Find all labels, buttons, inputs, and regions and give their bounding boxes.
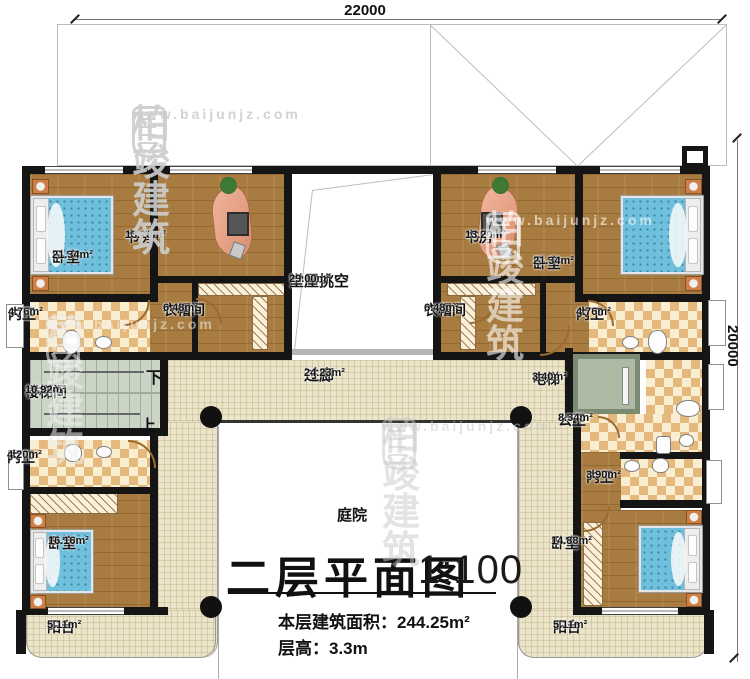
- sink: [622, 336, 639, 349]
- wall: [433, 174, 441, 356]
- nightstand: [686, 510, 702, 524]
- wardrobe-hatch: [447, 283, 536, 296]
- corridor-courtyard-edge-light: [212, 423, 530, 426]
- floor-height-value: 3.3m: [329, 639, 368, 658]
- corridor-floor: [168, 360, 565, 422]
- stair-arrow: [44, 371, 144, 373]
- wall: [284, 174, 292, 356]
- toilet: [676, 400, 700, 417]
- dimension-line-top: [75, 19, 722, 20]
- nightstand: [32, 179, 49, 194]
- void-railing: [292, 349, 433, 355]
- window: [48, 607, 124, 615]
- bed: [31, 530, 93, 593]
- sink: [624, 460, 640, 472]
- window: [478, 166, 556, 174]
- sink: [95, 336, 112, 349]
- wardrobe-hatch: [252, 296, 268, 350]
- bed-sheet-fold: [47, 203, 65, 267]
- washstand: [656, 436, 671, 454]
- bed: [31, 196, 113, 274]
- dimension-height-label: 20000: [724, 325, 741, 367]
- bay-window: [8, 450, 24, 490]
- potted-plant: [492, 177, 509, 194]
- drawing-scale: 1:100: [418, 548, 523, 593]
- bed: [639, 526, 702, 592]
- roof-outline: [57, 24, 727, 166]
- balcony-wall-stub: [704, 610, 714, 654]
- wall: [581, 294, 710, 302]
- bay-window: [708, 364, 724, 410]
- wall: [22, 487, 158, 494]
- bed-pillow: [36, 238, 46, 264]
- bed-pillow: [35, 564, 44, 584]
- balcony-floor-left: [26, 610, 216, 658]
- balcony-wall-stub: [16, 610, 26, 654]
- window: [600, 166, 680, 174]
- wall: [22, 352, 292, 360]
- balcony-floor-right: [518, 610, 708, 658]
- window: [45, 166, 123, 174]
- stair-up-label: 上: [140, 412, 156, 436]
- stair-arrow: [44, 413, 140, 415]
- bed: [621, 196, 703, 274]
- nightstand: [32, 276, 49, 291]
- wall: [441, 276, 581, 283]
- floor-height-label: 层高：: [278, 639, 329, 658]
- sink: [679, 434, 694, 447]
- elevator-door-slot: [622, 367, 629, 405]
- column: [510, 406, 532, 428]
- bay-window: [708, 300, 726, 346]
- hall-floor-right: [581, 452, 621, 510]
- column: [510, 596, 532, 618]
- wall: [22, 166, 30, 615]
- elevator-cab: [573, 354, 640, 414]
- bed-pillow: [688, 206, 698, 232]
- bed-pillow: [688, 535, 697, 556]
- nightstand: [685, 276, 702, 291]
- toilet: [64, 444, 82, 462]
- toilet: [648, 330, 667, 354]
- dimension-width-label: 22000: [285, 2, 445, 19]
- wall: [158, 276, 288, 283]
- bay-window: [706, 460, 722, 504]
- floor-area-line: 本层建筑面积：244.25m²: [278, 608, 470, 633]
- double-height-void: [292, 174, 433, 349]
- roof-divider-line: [430, 24, 431, 166]
- floor-area-value: 244.25m²: [397, 613, 470, 632]
- bed-sheet-fold: [45, 536, 60, 587]
- nightstand: [685, 179, 702, 194]
- chimney-detail: [682, 146, 708, 168]
- wall: [573, 418, 581, 615]
- window: [602, 607, 678, 615]
- toilet: [62, 330, 81, 354]
- stair-landing-line: [30, 392, 160, 394]
- bed-sheet-fold: [671, 532, 686, 586]
- stair-down-label: 下: [146, 364, 162, 388]
- wall: [565, 348, 573, 418]
- wall: [150, 174, 158, 302]
- title-underline: [228, 592, 496, 594]
- nightstand: [30, 595, 46, 609]
- wardrobe-hatch: [198, 283, 286, 296]
- bay-window: [6, 304, 24, 348]
- column: [200, 406, 222, 428]
- nightstand: [30, 514, 46, 528]
- potted-plant: [220, 177, 237, 194]
- bed-pillow: [688, 562, 697, 583]
- wardrobe-hatch: [583, 522, 603, 606]
- bed-sheet-fold: [669, 203, 687, 267]
- column: [200, 596, 222, 618]
- floor-height-line: 层高：3.3m: [278, 634, 368, 659]
- dimension-line-right: [737, 140, 738, 662]
- bed-pillow: [688, 238, 698, 264]
- toilet: [652, 458, 669, 473]
- nightstand: [686, 593, 702, 607]
- bed-pillow: [36, 206, 46, 232]
- bed-pillow: [35, 538, 44, 558]
- floor-plan-canvas: 22000 20000: [0, 0, 750, 679]
- computer-monitor: [227, 212, 249, 236]
- floor-area-label: 本层建筑面积：: [278, 613, 397, 632]
- sink: [96, 446, 112, 458]
- window: [170, 166, 252, 174]
- computer-monitor: [481, 212, 503, 236]
- wall: [620, 500, 710, 508]
